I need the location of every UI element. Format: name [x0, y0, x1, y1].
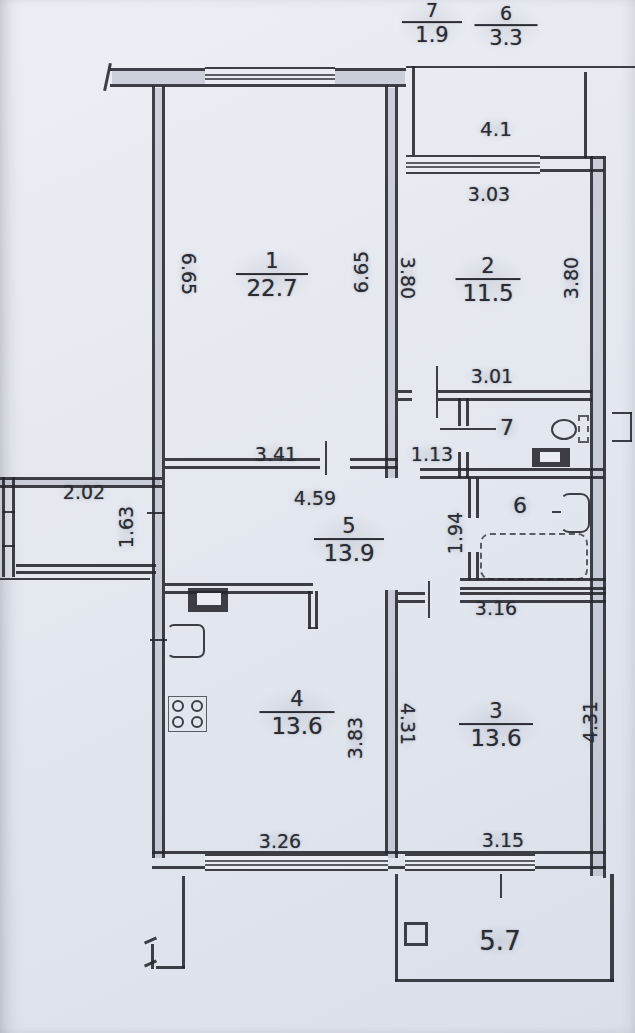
room-3-label-area: 13.6	[470, 725, 521, 750]
balcony-6-label-area: 3.3	[489, 26, 522, 49]
room-4-label: 413.6	[253, 686, 342, 742]
balcony-6-label: 63.3	[468, 1, 545, 53]
balcony-7-label-area: 1.9	[415, 23, 448, 46]
room-7-label: 7	[493, 414, 521, 442]
dim-room3-bottom: 3.15	[475, 828, 531, 853]
room-2-label-area: 11.5	[462, 280, 513, 305]
dim-room3-right: 4.31	[578, 694, 603, 750]
room-1-label-number: 1	[236, 251, 308, 275]
room-4-label-number: 4	[260, 689, 335, 713]
balcony-7-label: 71.9	[395, 0, 469, 50]
dim-bath-height: 1.94	[443, 505, 468, 561]
label-layer: 71.963.3122.7211.5513.9413.6313.6765.74.…	[0, 0, 635, 1033]
room-4-label-area: 13.6	[271, 713, 322, 738]
room-3-label-number: 3	[459, 701, 533, 725]
dim-room1-right: 6.65	[349, 244, 374, 300]
room-1-label: 122.7	[229, 248, 315, 304]
dim-vestibule: 1.13	[404, 442, 460, 467]
room-6-label: 6	[506, 492, 534, 520]
dim-room4-bottom: 3.26	[252, 829, 308, 854]
room-5-label: 513.9	[307, 513, 391, 569]
dim-balcony-left-width: 2.02	[56, 480, 112, 505]
dim-balcony-left-height: 1.63	[114, 499, 139, 555]
dim-hall-width: 4.59	[287, 486, 343, 511]
room-5-label-number: 5	[314, 516, 384, 540]
room-3-label: 313.6	[452, 698, 540, 754]
balcony-bottom-area-label: 5.7	[472, 925, 527, 958]
balcony-7-label-number: 7	[402, 1, 462, 23]
dim-room1-left: 6.65	[175, 246, 200, 302]
dim-room2-left: 3.80	[394, 250, 419, 306]
dim-balcony2-width: 4.1	[473, 116, 519, 142]
room-5-label-area: 13.9	[323, 540, 374, 565]
floor-plan: 71.963.3122.7211.5513.9413.6313.6765.74.…	[0, 0, 635, 1033]
dim-room3-left: 4.31	[394, 696, 419, 752]
room-2-label: 211.5	[449, 253, 528, 309]
dim-wc-top: 3.01	[464, 364, 520, 389]
room-2-label-number: 2	[456, 256, 521, 280]
balcony-6-label-number: 6	[475, 4, 538, 26]
dim-room1-bottom: 3.41	[248, 442, 304, 467]
dim-room3-top: 3.16	[468, 596, 524, 621]
dim-room2-top: 3.03	[461, 182, 517, 207]
dim-room2-right: 3.80	[559, 250, 584, 306]
dim-room4-right: 3.83	[343, 710, 368, 766]
room-1-label-area: 22.7	[246, 275, 297, 300]
